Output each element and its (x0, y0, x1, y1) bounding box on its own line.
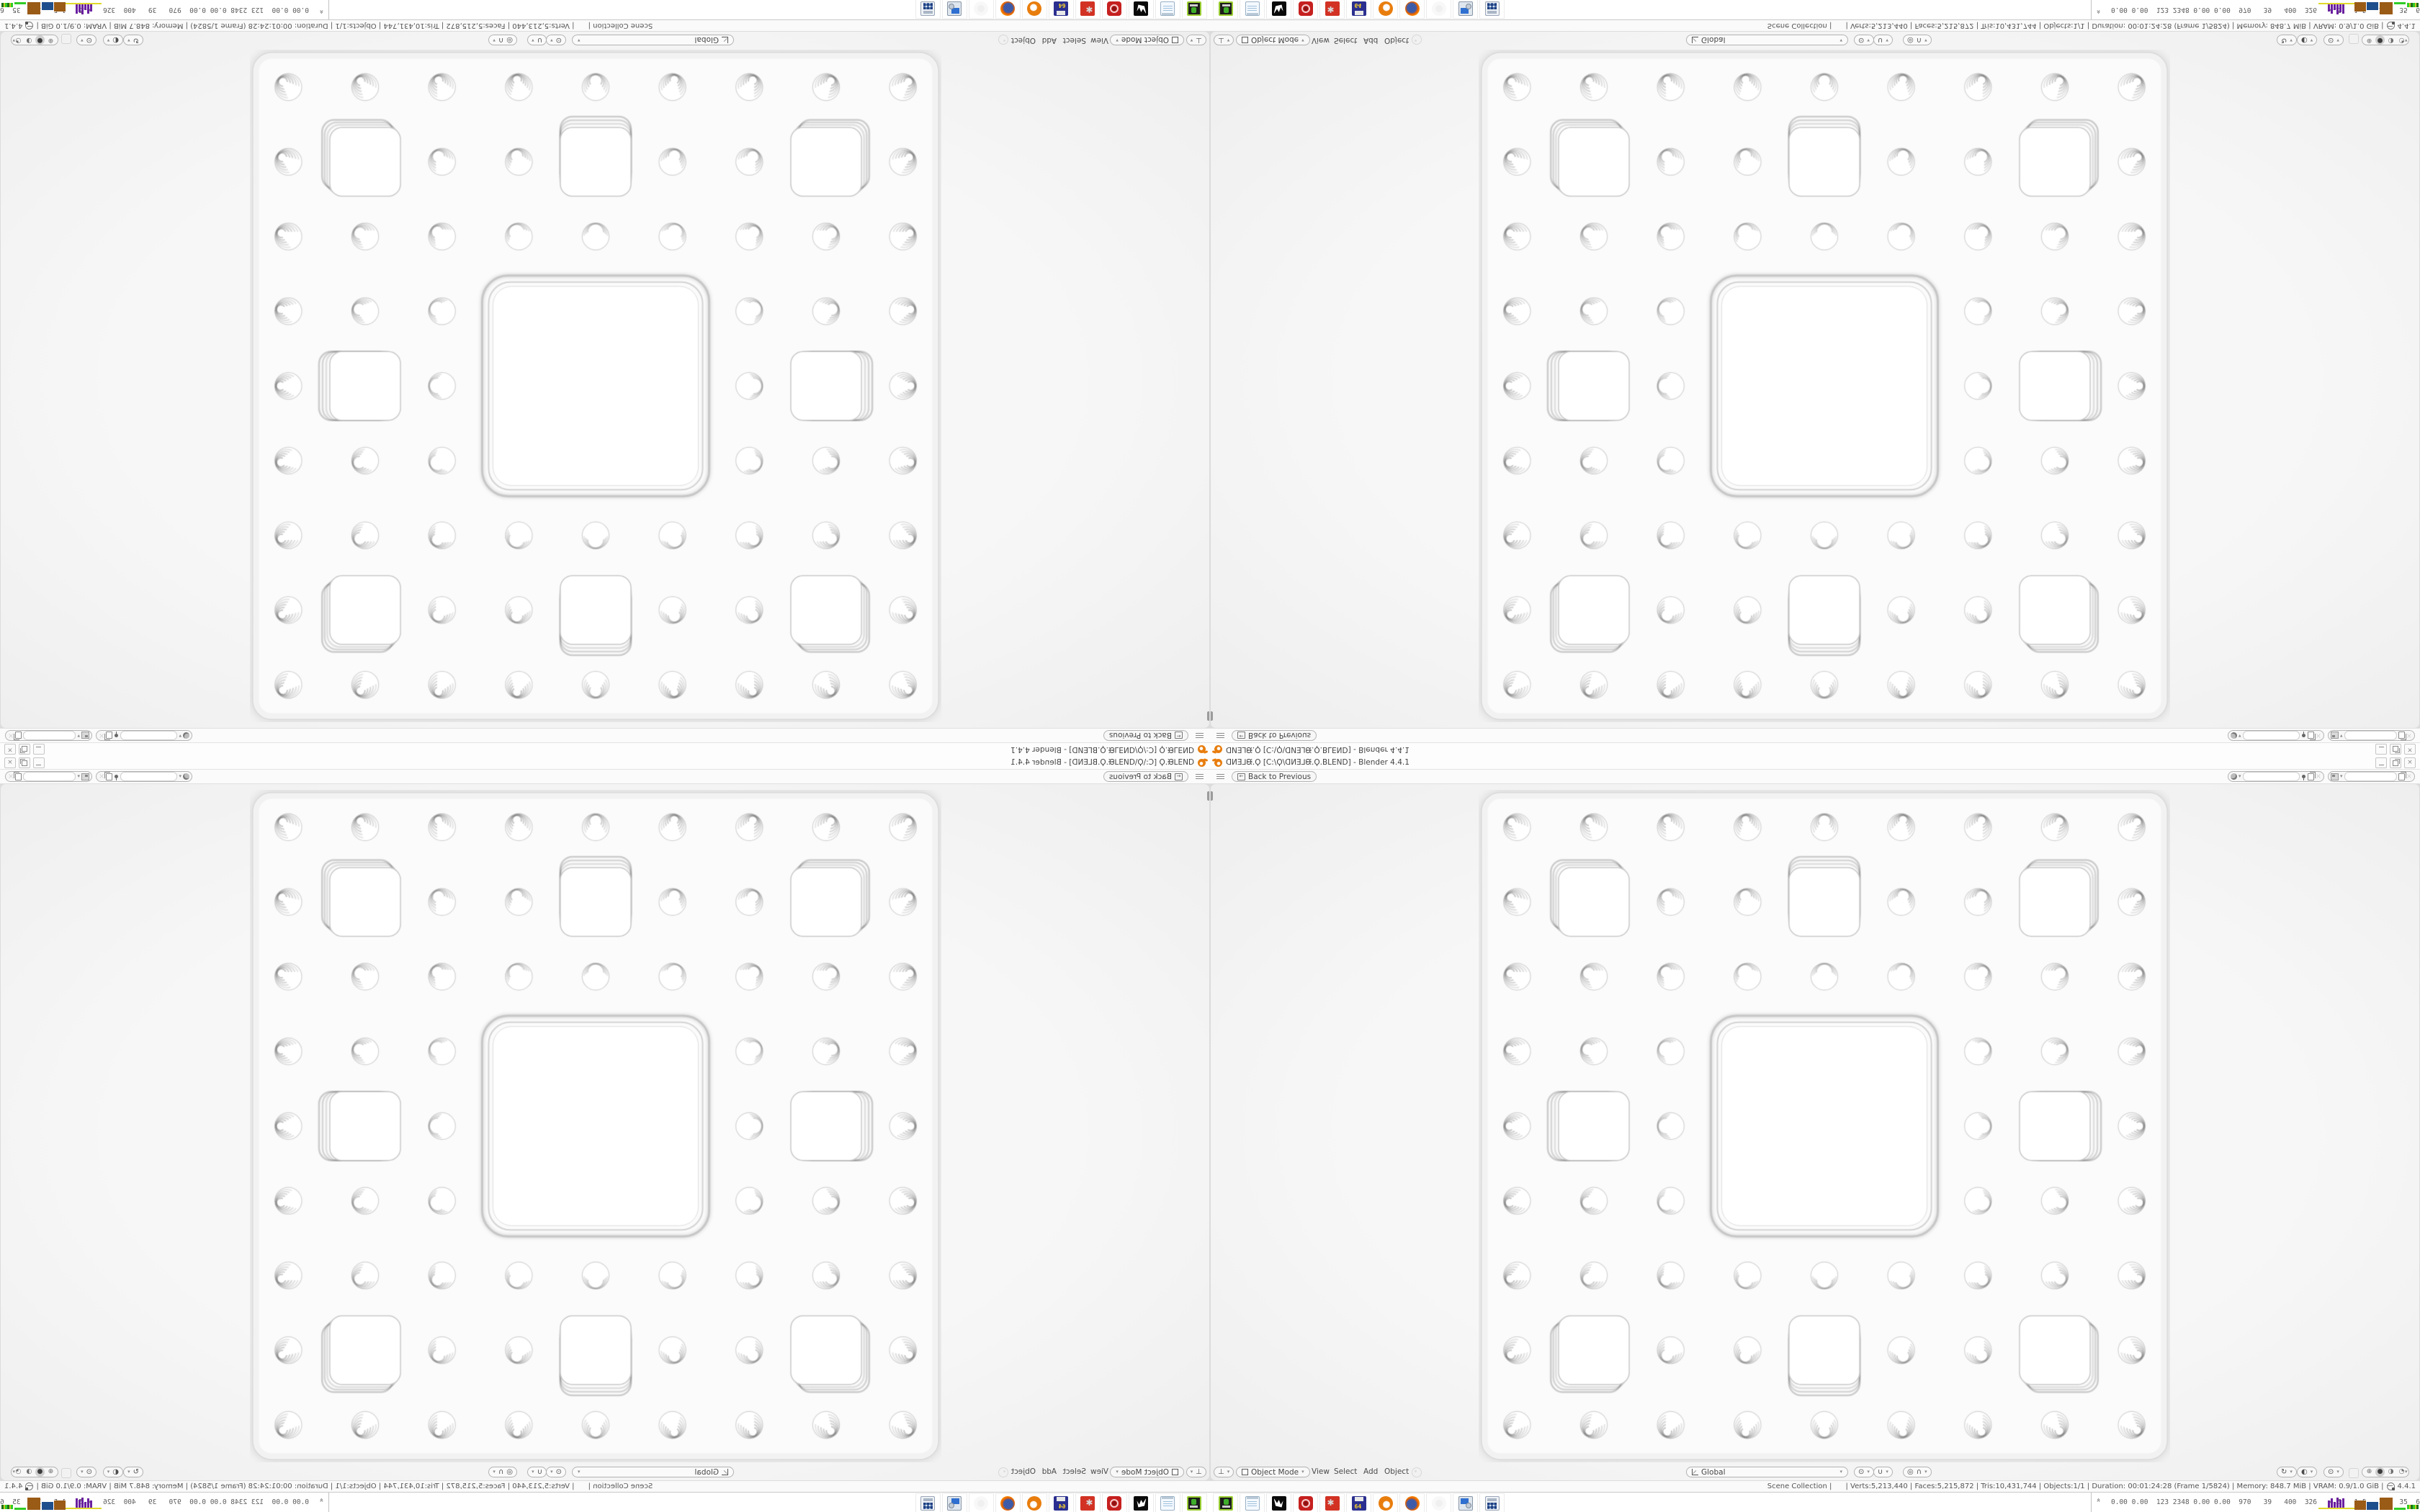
proportional-editing-icon[interactable]: ◎ (1907, 37, 1914, 44)
emulator-icon (1188, 1496, 1202, 1511)
taskbar-display-settings-button[interactable] (942, 0, 967, 19)
taskbar-calculator-button[interactable] (1479, 0, 1505, 19)
shading-material-button[interactable]: ◑ (2386, 35, 2396, 45)
taskbar-ink-app-button[interactable] (1266, 0, 1291, 19)
scene-name-field[interactable] (120, 772, 177, 781)
taskbar-floppy-64-button[interactable] (1049, 0, 1074, 19)
toolbar-collapsed-tab[interactable] (1211, 791, 1213, 801)
orientation-label: Global (1701, 1468, 1726, 1477)
menu-add[interactable]: Add (1042, 1467, 1057, 1476)
chevron-down-icon: ▾ (578, 1470, 581, 1475)
shading-options-chevron-icon[interactable]: ▾ (12, 1470, 15, 1475)
ink-app-icon (1134, 1496, 1149, 1511)
menu-icon[interactable] (1196, 774, 1204, 779)
menu-view[interactable]: View (1312, 36, 1330, 45)
toggle-xray-button[interactable] (2349, 34, 2359, 44)
object-mode-icon (1172, 1469, 1178, 1475)
shading-solid-button[interactable]: ● (35, 1467, 45, 1477)
taskbar-display-settings-button[interactable] (1453, 0, 1478, 19)
view-layer-name-field[interactable] (2344, 731, 2397, 740)
pin-icon[interactable] (2302, 775, 2305, 778)
tray-expand-icon[interactable]: » (2095, 1499, 2103, 1502)
mode-label: Object Mode (1121, 36, 1169, 45)
shading-wireframe-button[interactable]: ⊕ (2365, 35, 2374, 45)
monitor-graph-blue-block (2367, 1502, 2378, 1510)
overlays-icon: ◐ (112, 1469, 119, 1476)
taskbar-calculator-button[interactable] (1479, 1493, 1505, 1512)
close-button[interactable]: × (2404, 757, 2416, 768)
taskbar-emulator-button[interactable] (1182, 1493, 1207, 1512)
menu-object[interactable]: Object (1011, 1467, 1036, 1476)
monitor-graph-brown-block (54, 2, 66, 12)
tray-expand-icon[interactable]: » (317, 9, 325, 12)
taskbar-calculator-button[interactable] (915, 0, 941, 19)
ghost-app-icon (1432, 2, 1446, 17)
transform-orientation-dropdown[interactable]: Global ▾ (1686, 35, 1848, 45)
shading-solid-button[interactable]: ● (35, 35, 45, 45)
window-controls: × (2375, 757, 2416, 768)
proportional-editing-icon[interactable]: ◎ (506, 1469, 513, 1476)
chevron-down-icon[interactable]: ▾ (1924, 37, 1927, 42)
visibility-dropdown[interactable]: ⊙ ▾ (2323, 1467, 2344, 1477)
snap-controls[interactable]: ∪ ▾ (527, 1467, 547, 1477)
calculator-icon (1485, 2, 1500, 17)
scene-icon (2231, 732, 2237, 739)
overlays-icon: ◐ (2301, 37, 2308, 44)
toggle-xray-button[interactable] (2349, 1468, 2359, 1478)
proportional-editing-controls[interactable]: ◎ ∩ ▾ (488, 1467, 517, 1477)
shading-material-button[interactable]: ◑ (24, 1467, 34, 1477)
ghost-app-icon (1432, 1496, 1446, 1511)
proportional-editing-controls[interactable]: ◎ ∩ ▾ (1903, 1467, 1932, 1477)
delete-scene-icon: × (2316, 773, 2321, 780)
back-window-icon: ← (1237, 773, 1245, 780)
chevron-down-icon: ▾ (81, 37, 84, 42)
blender-topbar: ← Back to Previous ▾ × ▾ × (0, 728, 1210, 742)
shading-options-chevron-icon[interactable]: ▾ (12, 37, 15, 42)
menu-icon[interactable] (1216, 733, 1224, 738)
new-scene-icon[interactable] (106, 773, 112, 780)
mode-dropdown[interactable]: Object Mode ▾ (1236, 1467, 1310, 1477)
scene-statistics: Scene Collection | | Verts:5,213,440 | F… (1767, 22, 2384, 30)
blender-window: ᗡИƎ⅃ᙠ.Ϙ [C:\Ϙ\ᗡИƎ⅃ᙠ.Ϙ.BLEND] - Blender 4… (0, 756, 1210, 1512)
pin-icon[interactable] (115, 734, 118, 737)
shading-wireframe-button[interactable]: ⊕ (46, 35, 55, 45)
taskbar-emulator-button[interactable] (1182, 0, 1207, 19)
monitor-graph-yellow-line (66, 1508, 102, 1509)
maximize-button[interactable] (2390, 744, 2401, 755)
scene-selector[interactable]: ▾ × (96, 730, 192, 741)
viewport-canvas-menger-sponge[interactable] (1479, 790, 2170, 1462)
viewport-editor-icon: ⊥ (1196, 1469, 1202, 1476)
taskbar-ink-app-button[interactable] (1129, 1493, 1154, 1512)
menu-icon[interactable] (1216, 774, 1224, 779)
pivot-point-dropdown[interactable]: ⊙ ▾ (546, 1467, 566, 1477)
menu-object[interactable]: Object (1384, 36, 1409, 45)
view-layer-name-field[interactable] (23, 772, 76, 781)
chevron-down-icon[interactable]: ▾ (493, 37, 496, 42)
taskbar-ghost-app-button[interactable] (1426, 1493, 1451, 1512)
proportional-editing-controls[interactable]: ◎ ∩ ▾ (1903, 35, 1932, 45)
3d-viewport[interactable]: ⊥ ▾ Object Mode ▾ View Select Add Object… (1211, 32, 2419, 728)
chevron-down-icon[interactable]: ▾ (2238, 733, 2241, 738)
magnet-icon[interactable]: ∪ (537, 1469, 542, 1476)
maximize-button[interactable] (19, 744, 30, 755)
scene-selector[interactable]: ▾ × (2228, 771, 2324, 782)
taskbar-red-badge-button[interactable] (1293, 1493, 1318, 1512)
ink-app-icon (1134, 2, 1149, 17)
magnet-icon[interactable]: ∪ (1878, 37, 1883, 44)
back-to-previous-button[interactable]: ← Back to Previous (1103, 771, 1188, 782)
view-layer-selector[interactable]: ▾ × (2328, 771, 2415, 782)
view-layer-selector[interactable]: ▾ × (5, 771, 92, 782)
transform-orientation-dropdown[interactable]: Global ▾ (1686, 1467, 1848, 1477)
menu-view[interactable]: View (1090, 36, 1108, 45)
visibility-dropdown[interactable]: ⊙ ▾ (76, 35, 97, 45)
magnet-icon[interactable]: ∪ (1878, 1469, 1883, 1476)
minimize-button[interactable] (2375, 757, 2387, 768)
chevron-down-icon[interactable]: ▾ (532, 37, 534, 42)
taskbar-blender-button[interactable] (1022, 0, 1047, 19)
toggle-xray-button[interactable] (61, 1468, 71, 1478)
pivot-point-dropdown[interactable]: ⊙ ▾ (1854, 35, 1874, 45)
maximize-icon (22, 747, 27, 752)
taskbar-display-settings-button[interactable] (1453, 1493, 1478, 1512)
tray-expand-icon[interactable]: » (2095, 9, 2103, 12)
new-view-layer-icon[interactable] (2398, 732, 2405, 739)
monitor-graph-purple-bars (75, 4, 92, 16)
floppy-64-icon (1352, 1496, 1366, 1511)
monitor-graph-blue-block (2367, 2, 2378, 10)
falloff-curve-icon: ∩ (1917, 1469, 1922, 1476)
snap-controls[interactable]: ∪ ▾ (527, 35, 547, 45)
chevron-down-icon: ▾ (2311, 37, 2313, 42)
taskbar-display-settings-button[interactable] (942, 1493, 967, 1512)
taskbar-floppy-64-button[interactable] (1346, 0, 1371, 19)
taskbar-floppy-64-button[interactable] (1346, 1493, 1371, 1512)
viewport-canvas-menger-sponge[interactable] (250, 50, 941, 722)
orientation-axes-icon (722, 1469, 728, 1475)
emulator-icon (1219, 1496, 1233, 1511)
scene-name-field[interactable] (2243, 772, 2300, 781)
viewport-shading-group: ⊕ ● ◑ ◔ (2362, 1467, 2409, 1477)
window-titlebar[interactable]: ᗡИƎ⅃ᙠ.Ϙ [C:\Ϙ\ᗡИƎ⅃ᙠ.Ϙ.BLEND] - Blender 4… (1210, 742, 2420, 756)
shading-solid-button[interactable]: ● (2375, 1467, 2385, 1477)
close-button[interactable]: × (4, 757, 16, 768)
view-layer-name-field[interactable] (23, 731, 76, 740)
blender-topbar: ← Back to Previous ▾ × ▾ × (1210, 728, 2420, 742)
maximize-button[interactable] (19, 757, 30, 768)
shading-material-button[interactable]: ◑ (2386, 1467, 2396, 1477)
pivot-point-dropdown[interactable]: ⊙ ▾ (1854, 1467, 1874, 1477)
viewport-canvas-menger-sponge[interactable] (250, 790, 941, 1462)
show-overlays-dropdown[interactable]: ◐ ▾ (2297, 35, 2317, 45)
3d-viewport[interactable]: ⊥ ▾ Object Mode ▾ View Select Add Object… (1211, 784, 2419, 1480)
taskbar-ghost-app-button[interactable] (969, 0, 994, 19)
taskbar-red-gear-button[interactable] (1319, 0, 1345, 19)
menu-select[interactable]: Select (1063, 36, 1086, 45)
blender-logo-icon (1214, 746, 1222, 754)
chevron-down-icon: ▾ (1116, 37, 1119, 42)
taskbar-red-gear-button[interactable] (1319, 1493, 1345, 1512)
menu-view[interactable]: View (1090, 1467, 1108, 1476)
delete-view-layer-icon: × (2406, 773, 2412, 780)
new-view-layer-icon[interactable] (15, 732, 22, 739)
pivot-point-dropdown[interactable]: ⊙ ▾ (546, 35, 566, 45)
mode-transfer-icon (998, 35, 1008, 45)
calculator-icon (1485, 1496, 1500, 1511)
gizmo-icon: ↻ (133, 37, 139, 44)
show-gizmos-dropdown[interactable]: ↻ ▾ (123, 35, 143, 45)
transform-orientation-dropdown[interactable]: Global ▾ (572, 35, 734, 45)
taskbar-firefox-button[interactable] (995, 1493, 1021, 1512)
show-overlays-dropdown[interactable]: ◐ ▾ (103, 1467, 123, 1477)
shading-wireframe-button[interactable]: ⊕ (46, 1467, 55, 1477)
scene-statistics: Scene Collection | | Verts:5,213,440 | F… (36, 22, 653, 30)
window-titlebar[interactable]: ᗡИƎ⅃ᙠ.Ϙ [C:\Ϙ\ᗡИƎ⅃ᙠ.Ϙ.BLEND] - Blender 4… (0, 756, 1210, 770)
taskbar-emulator-button[interactable] (1213, 0, 1238, 19)
editor-type-dropdown[interactable]: ⊥ ▾ (1186, 35, 1206, 45)
gizmo-icon: ↻ (2281, 37, 2287, 44)
monitor-graph-brown-block-tall (2380, 1498, 2393, 1510)
viewport-canvas-menger-sponge[interactable] (1479, 50, 2170, 722)
shading-options-chevron-icon[interactable]: ▾ (2405, 1470, 2408, 1475)
maximize-button[interactable] (2390, 757, 2401, 768)
taskbar-notepad-button[interactable] (1240, 0, 1265, 19)
chevron-down-icon: ▾ (2311, 1470, 2313, 1475)
3d-viewport[interactable]: ⊥ ▾ Object Mode ▾ View Select Add Object… (1, 32, 1209, 728)
taskbar-red-gear-button[interactable] (1075, 1493, 1101, 1512)
view-layer-icon (2331, 773, 2339, 780)
toolbar-collapsed-tab[interactable] (1207, 711, 1209, 721)
show-overlays-dropdown[interactable]: ◐ ▾ (2297, 1467, 2317, 1477)
scene-name-field[interactable] (2243, 731, 2300, 740)
minimize-button[interactable] (2375, 744, 2387, 755)
show-gizmos-dropdown[interactable]: ↻ ▾ (123, 1467, 143, 1477)
taskbar-ghost-app-button[interactable] (969, 1493, 994, 1512)
taskbar-ink-app-button[interactable] (1129, 0, 1154, 19)
window-controls: × (4, 744, 45, 755)
shading-options-chevron-icon[interactable]: ▾ (2405, 37, 2408, 42)
ghost-app-icon (974, 2, 989, 17)
menu-add[interactable]: Add (1042, 36, 1057, 45)
scene-selector[interactable]: ▾ × (2228, 730, 2324, 741)
close-button[interactable]: × (4, 744, 16, 755)
taskbar-firefox-button[interactable] (1399, 0, 1425, 19)
chevron-down-icon: ▾ (107, 37, 110, 42)
menu-object[interactable]: Object (1011, 36, 1036, 45)
chevron-down-icon[interactable]: ▾ (1924, 1470, 1927, 1475)
mode-dropdown[interactable]: Object Mode ▾ (1110, 35, 1184, 45)
taskbar-blender-button[interactable] (1373, 1493, 1398, 1512)
back-to-previous-button[interactable]: ← Back to Previous (1232, 730, 1317, 741)
chevron-down-icon[interactable]: ▾ (77, 733, 80, 738)
view-layer-name-field[interactable] (2344, 772, 2397, 781)
new-scene-icon[interactable] (2308, 732, 2314, 739)
visibility-dropdown[interactable]: ⊙ ▾ (76, 1467, 97, 1477)
scene-statistics: Scene Collection | | Verts:5,213,440 | F… (36, 1482, 653, 1490)
window-titlebar[interactable]: ᗡИƎ⅃ᙠ.Ϙ [C:\Ϙ\ᗡИƎ⅃ᙠ.Ϙ.BLEND] - Blender 4… (1210, 756, 2420, 770)
pivot-point-icon: ⊙ (1858, 37, 1864, 44)
chevron-down-icon[interactable]: ▾ (179, 774, 181, 779)
chevron-down-icon[interactable]: ▾ (2238, 774, 2241, 779)
magnet-icon[interactable]: ∪ (537, 37, 542, 44)
chevron-down-icon[interactable]: ▾ (77, 774, 80, 779)
viewport-header: ⊥ ▾ Object Mode ▾ View Select Add Object… (1211, 32, 2419, 48)
os-taskbar: » 0.00 0.00 123 2348 0.00 0.00 970 39 40… (1210, 0, 2420, 20)
floppy-64-icon (1054, 2, 1069, 17)
taskbar-red-badge-button[interactable] (1102, 0, 1127, 19)
back-to-previous-button[interactable]: ← Back to Previous (1103, 730, 1188, 741)
viewport-shading-group: ⊕ ● ◑ ◔ (11, 1467, 58, 1477)
status-bar: Scene Collection | | Verts:5,213,440 | F… (1210, 20, 2420, 32)
view-layer-selector[interactable]: ▾ × (5, 730, 92, 741)
menu-select[interactable]: Select (1063, 1467, 1086, 1476)
toolbar-collapsed-tab[interactable] (1211, 711, 1213, 721)
falloff-curve-icon: ∩ (498, 37, 503, 44)
editor-type-dropdown[interactable]: ⊥ ▾ (1214, 1467, 1234, 1477)
window-controls: × (2375, 744, 2416, 755)
taskbar-notepad-button[interactable] (1240, 1493, 1265, 1512)
system-tray: » 0.00 0.00 123 2348 0.00 0.00 970 39 40… (2091, 0, 2420, 19)
menu-object[interactable]: Object (1384, 1467, 1409, 1476)
object-mode-icon (1242, 37, 1248, 43)
taskbar-blender-button[interactable] (1022, 1493, 1047, 1512)
taskbar-app-icons (1213, 1493, 1505, 1512)
monitor-graph-blue-block (42, 2, 53, 10)
snap-controls[interactable]: ∪ ▾ (1873, 35, 1893, 45)
view-layer-selector[interactable]: ▾ × (2328, 730, 2415, 741)
network-globe-icon (2387, 1482, 2395, 1490)
snap-controls[interactable]: ∪ ▾ (1873, 1467, 1893, 1477)
minimize-button[interactable] (33, 744, 45, 755)
transform-orientation-dropdown[interactable]: Global ▾ (572, 1467, 734, 1477)
chevron-down-icon[interactable]: ▾ (2340, 733, 2343, 738)
pin-icon[interactable] (2302, 734, 2305, 737)
shading-wireframe-button[interactable]: ⊕ (2365, 1467, 2374, 1477)
new-view-layer-icon[interactable] (15, 773, 22, 780)
chevron-down-icon: ▾ (127, 1470, 130, 1475)
back-to-previous-label: Back to Previous (1109, 732, 1172, 740)
quadrant-top-right-vflipped: ᗡИƎ⅃ᙠ.Ϙ [C:\Ϙ\ᗡИƎ⅃ᙠ.Ϙ.BLEND] - Blender 4… (1210, 0, 2420, 756)
monitor-graph-green-line (14, 2, 26, 4)
chevron-down-icon[interactable]: ▾ (1886, 1470, 1888, 1475)
taskbar-firefox-button[interactable] (1399, 1493, 1425, 1512)
viewport-header: ⊥ ▾ Object Mode ▾ View Select Add Object… (1211, 1464, 2419, 1480)
menu-select[interactable]: Select (1334, 1467, 1357, 1476)
taskbar-ink-app-button[interactable] (1266, 1493, 1291, 1512)
blender-window: ᗡИƎ⅃ᙠ.Ϙ [C:\Ϙ\ᗡИƎ⅃ᙠ.Ϙ.BLEND] - Blender 4… (1210, 756, 2420, 1512)
new-view-layer-icon[interactable] (2398, 773, 2405, 780)
menu-add[interactable]: Add (1363, 36, 1378, 45)
taskbar-red-gear-button[interactable] (1075, 0, 1101, 19)
taskbar-red-badge-button[interactable] (1293, 0, 1318, 19)
taskbar-red-badge-button[interactable] (1102, 1493, 1127, 1512)
visibility-dropdown[interactable]: ⊙ ▾ (2323, 35, 2344, 45)
blender-logo-icon (1198, 759, 1206, 767)
chevron-down-icon: ▾ (1116, 1470, 1119, 1475)
menu-icon[interactable] (1196, 733, 1204, 738)
pin-icon[interactable] (115, 775, 118, 778)
scene-selector[interactable]: ▾ × (96, 771, 192, 782)
chevron-down-icon[interactable]: ▾ (532, 1470, 534, 1475)
red-badge-icon (1108, 2, 1122, 17)
mode-dropdown[interactable]: Object Mode ▾ (1110, 1467, 1184, 1477)
system-tray: » 0.00 0.00 123 2348 0.00 0.00 970 39 40… (0, 1493, 329, 1512)
show-overlays-dropdown[interactable]: ◐ ▾ (103, 35, 123, 45)
chevron-down-icon[interactable]: ▾ (1886, 37, 1888, 42)
taskbar-calculator-button[interactable] (915, 1493, 941, 1512)
blender-topbar: ← Back to Previous ▾ × ▾ × (0, 770, 1210, 784)
new-scene-icon[interactable] (106, 732, 112, 739)
blender-version: 4.4.1 (4, 22, 22, 30)
scene-statistics: Scene Collection | | Verts:5,213,440 | F… (1767, 1482, 2384, 1490)
gizmo-icon: ↻ (133, 1469, 139, 1476)
editor-type-dropdown[interactable]: ⊥ ▾ (1186, 1467, 1206, 1477)
3d-viewport[interactable]: ⊥ ▾ Object Mode ▾ View Select Add Object… (1, 784, 1209, 1480)
viewport-shading-group: ⊕ ● ◑ ◔ (11, 35, 58, 45)
taskbar-blender-button[interactable] (1373, 0, 1398, 19)
proportional-editing-controls[interactable]: ◎ ∩ ▾ (488, 35, 517, 45)
chevron-down-icon[interactable]: ▾ (493, 1470, 496, 1475)
minimize-button[interactable] (33, 757, 45, 768)
network-globe-icon (25, 22, 33, 30)
menu-add[interactable]: Add (1363, 1467, 1378, 1476)
scene-name-field[interactable] (120, 731, 177, 740)
tray-expand-icon[interactable]: » (317, 1499, 325, 1502)
editor-type-dropdown[interactable]: ⊥ ▾ (1214, 35, 1234, 45)
shading-solid-button[interactable]: ● (2375, 35, 2385, 45)
chevron-down-icon[interactable]: ▾ (179, 733, 181, 738)
toggle-xray-button[interactable] (61, 34, 71, 44)
chevron-down-icon: ▾ (2336, 1470, 2339, 1475)
monitor-graph-purple-bars (2328, 4, 2345, 16)
show-gizmos-dropdown[interactable]: ↻ ▾ (2277, 1467, 2297, 1477)
display-settings-icon (1458, 2, 1473, 17)
taskbar-notepad-button[interactable] (1155, 1493, 1180, 1512)
window-titlebar[interactable]: ᗡИƎ⅃ᙠ.Ϙ [C:\Ϙ\ᗡИƎ⅃ᙠ.Ϙ.BLEND] - Blender 4… (0, 742, 1210, 756)
viewport-header: ⊥ ▾ Object Mode ▾ View Select Add Object… (1, 32, 1209, 48)
taskbar-floppy-64-button[interactable] (1049, 1493, 1074, 1512)
chevron-down-icon[interactable]: ▾ (2340, 774, 2343, 779)
toolbar-collapsed-tab[interactable] (1207, 791, 1209, 801)
taskbar-ghost-app-button[interactable] (1426, 0, 1451, 19)
back-to-previous-button[interactable]: ← Back to Previous (1232, 771, 1317, 782)
shading-material-button[interactable]: ◑ (24, 35, 34, 45)
taskbar-emulator-button[interactable] (1213, 1493, 1238, 1512)
mosaic-page: { "app": {"name": "Blender", "version": … (0, 0, 2420, 1512)
taskbar-notepad-button[interactable] (1155, 0, 1180, 19)
show-gizmos-dropdown[interactable]: ↻ ▾ (2277, 35, 2297, 45)
window-title: ᗡИƎ⅃ᙠ.Ϙ [C:\Ϙ\ᗡИƎ⅃ᙠ.Ϙ.BLEND] - Blender 4… (1226, 758, 1410, 768)
taskbar-firefox-button[interactable] (995, 0, 1021, 19)
notepad-icon (1245, 1496, 1260, 1511)
system-tray: » 0.00 0.00 123 2348 0.00 0.00 970 39 40… (0, 0, 329, 19)
mode-dropdown[interactable]: Object Mode ▾ (1236, 35, 1310, 45)
menu-view[interactable]: View (1312, 1467, 1330, 1476)
monitor-graph-brown-block-tall (2380, 2, 2393, 14)
pivot-point-icon: ⊙ (556, 1469, 562, 1476)
proportional-editing-icon[interactable]: ◎ (1907, 1469, 1914, 1476)
menu-select[interactable]: Select (1334, 36, 1357, 45)
monitor-graph-dots (2407, 1505, 2419, 1509)
new-scene-icon[interactable] (2308, 773, 2314, 780)
back-to-previous-label: Back to Previous (1248, 732, 1311, 740)
visibility-icon: ⊙ (2328, 37, 2334, 44)
proportional-editing-icon[interactable]: ◎ (506, 37, 513, 44)
close-button[interactable]: × (2404, 744, 2416, 755)
emulator-icon (1188, 2, 1202, 17)
